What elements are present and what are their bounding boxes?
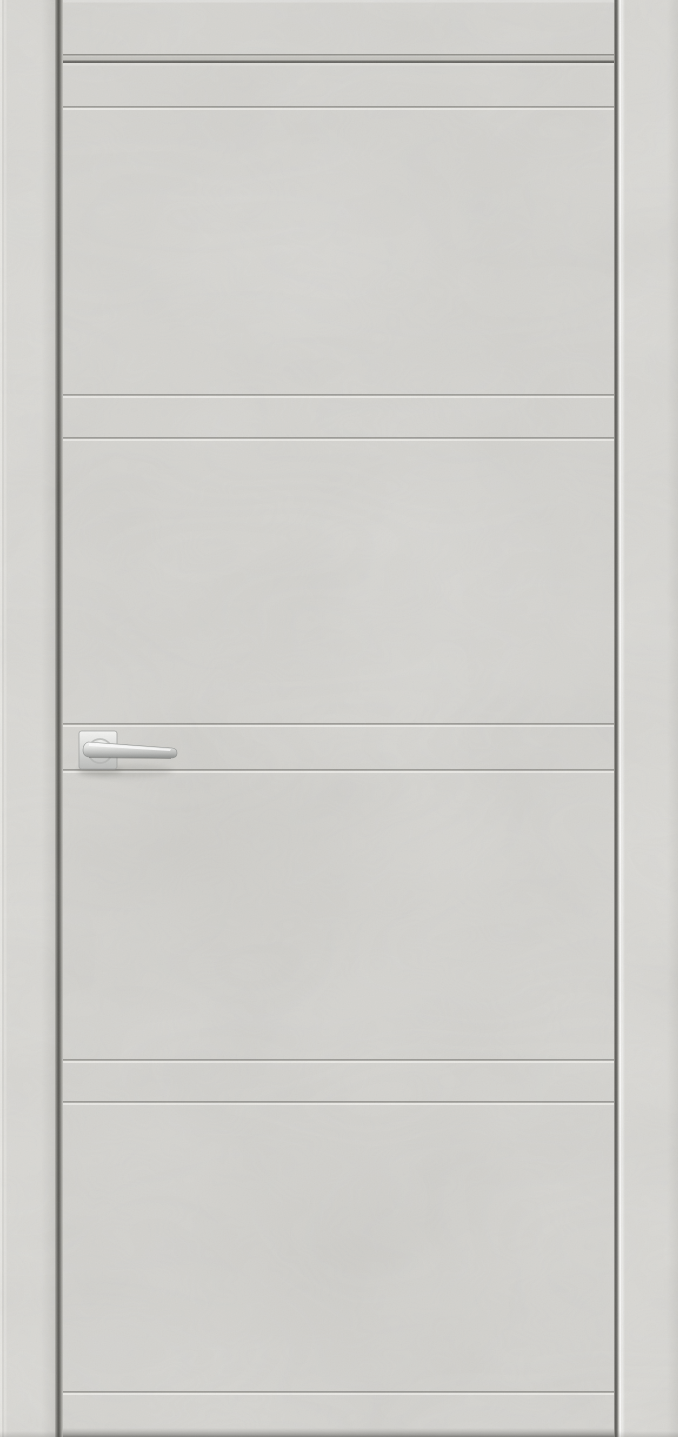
door-groove: [63, 1391, 614, 1395]
door-groove: [63, 106, 614, 110]
handle-lever: [83, 740, 177, 759]
door-groove: [63, 394, 614, 398]
door-frame-right-casing: [622, 0, 678, 1437]
door-groove: [63, 437, 614, 441]
floor-shadow: [0, 1431, 678, 1437]
door-handle: [73, 722, 203, 797]
door-frame-top-casing: [63, 0, 614, 54]
door-product-photo: [0, 0, 678, 1437]
top-frame-reveal: [63, 54, 614, 63]
door-groove: [63, 1101, 614, 1105]
door-frame-left-casing: [0, 0, 55, 1437]
door-leaf: [63, 63, 614, 1437]
frame-door-gap-right: [614, 0, 622, 1437]
door-groove: [63, 1059, 614, 1063]
frame-door-gap-left: [55, 0, 63, 1437]
